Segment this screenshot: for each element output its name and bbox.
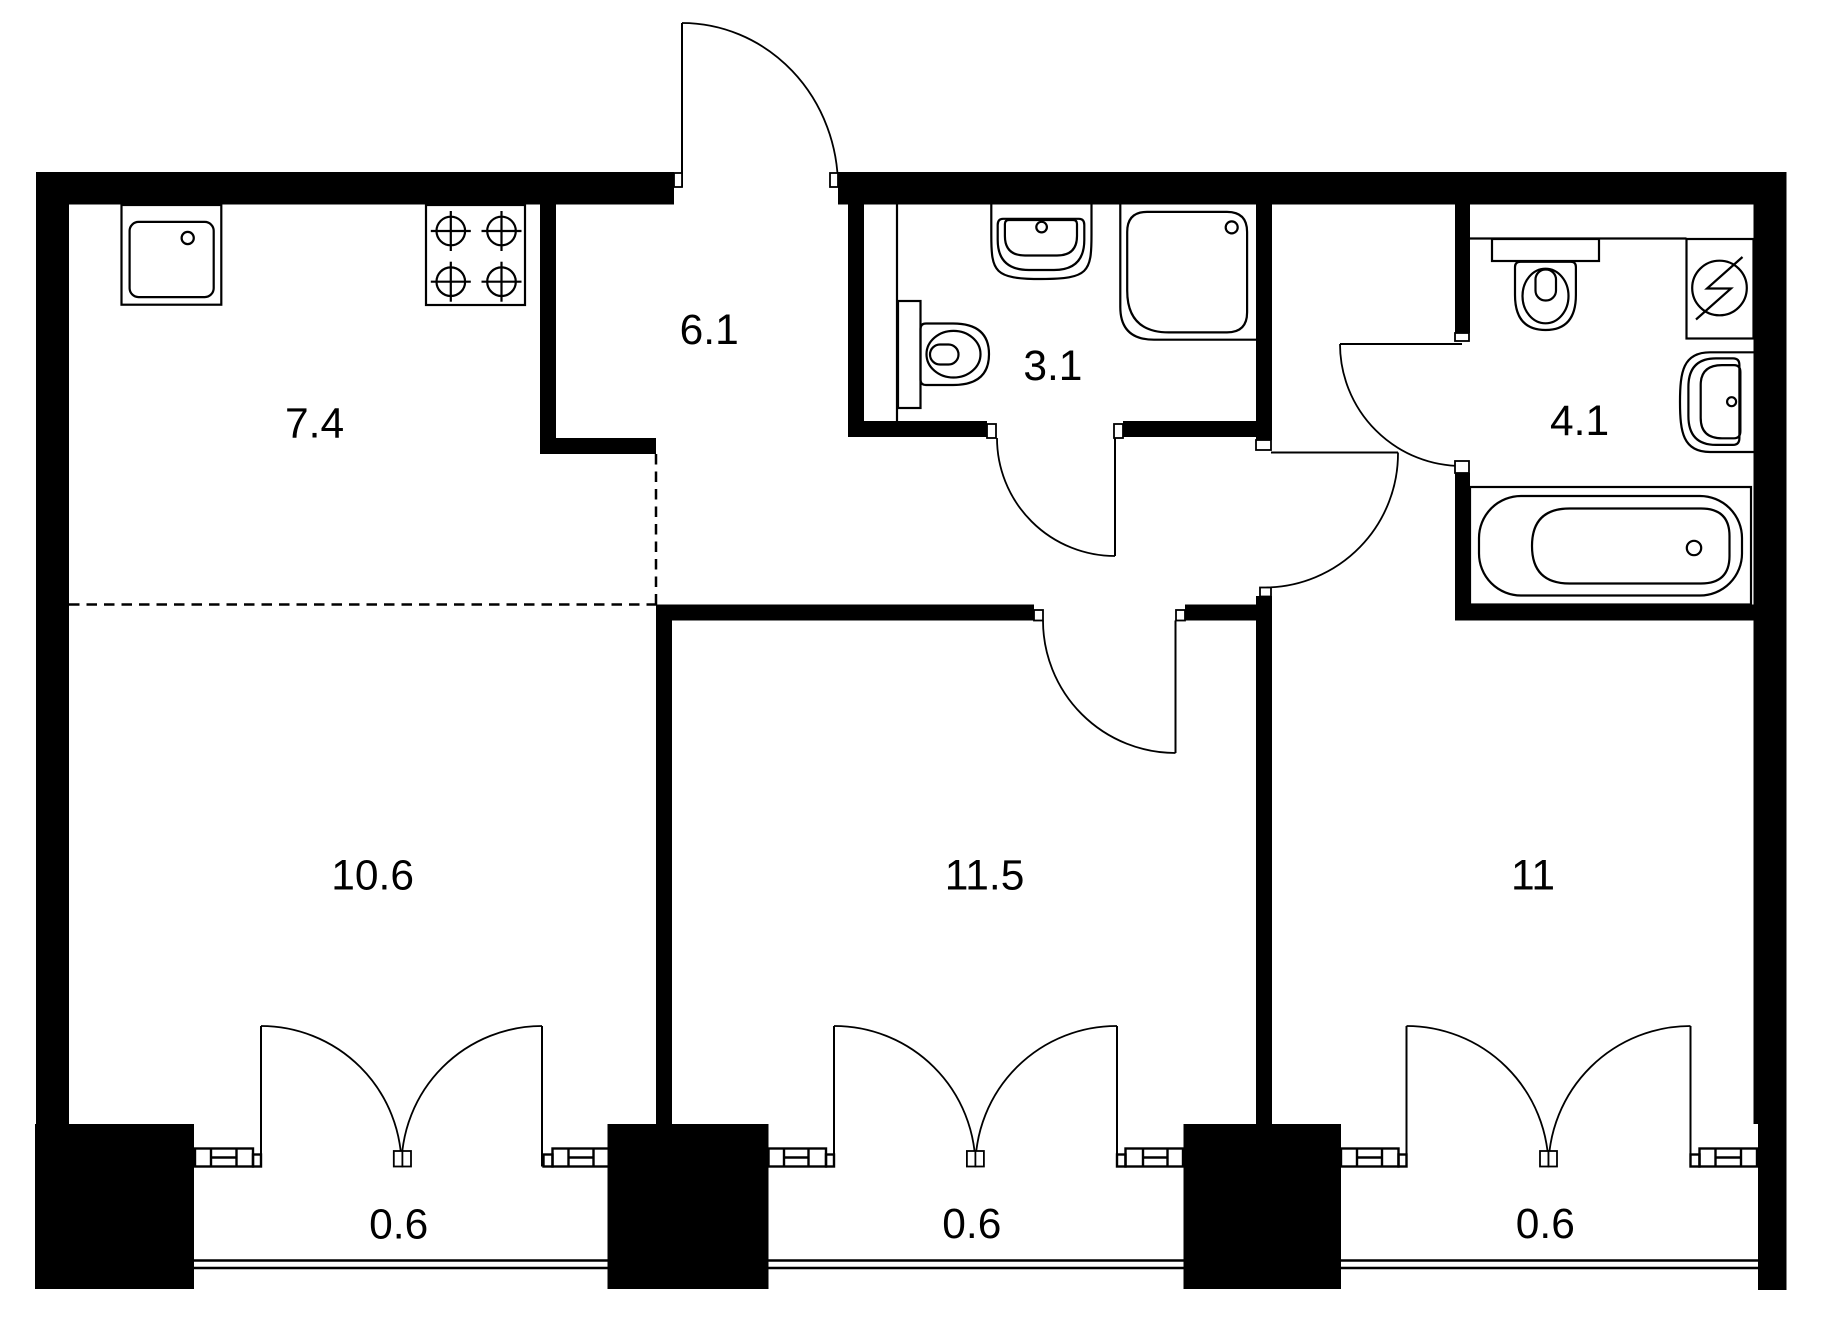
svg-text:6.1: 6.1 (680, 307, 739, 354)
svg-text:10.6: 10.6 (331, 852, 414, 899)
svg-text:0.6: 0.6 (1516, 1201, 1575, 1248)
svg-text:3.1: 3.1 (1023, 343, 1082, 390)
svg-text:11: 11 (1511, 853, 1555, 900)
svg-text:4.1: 4.1 (1550, 398, 1609, 445)
svg-text:0.6: 0.6 (369, 1201, 428, 1248)
svg-text:0.6: 0.6 (942, 1201, 1001, 1248)
svg-text:11.5: 11.5 (945, 853, 1025, 900)
svg-text:7.4: 7.4 (285, 400, 344, 447)
